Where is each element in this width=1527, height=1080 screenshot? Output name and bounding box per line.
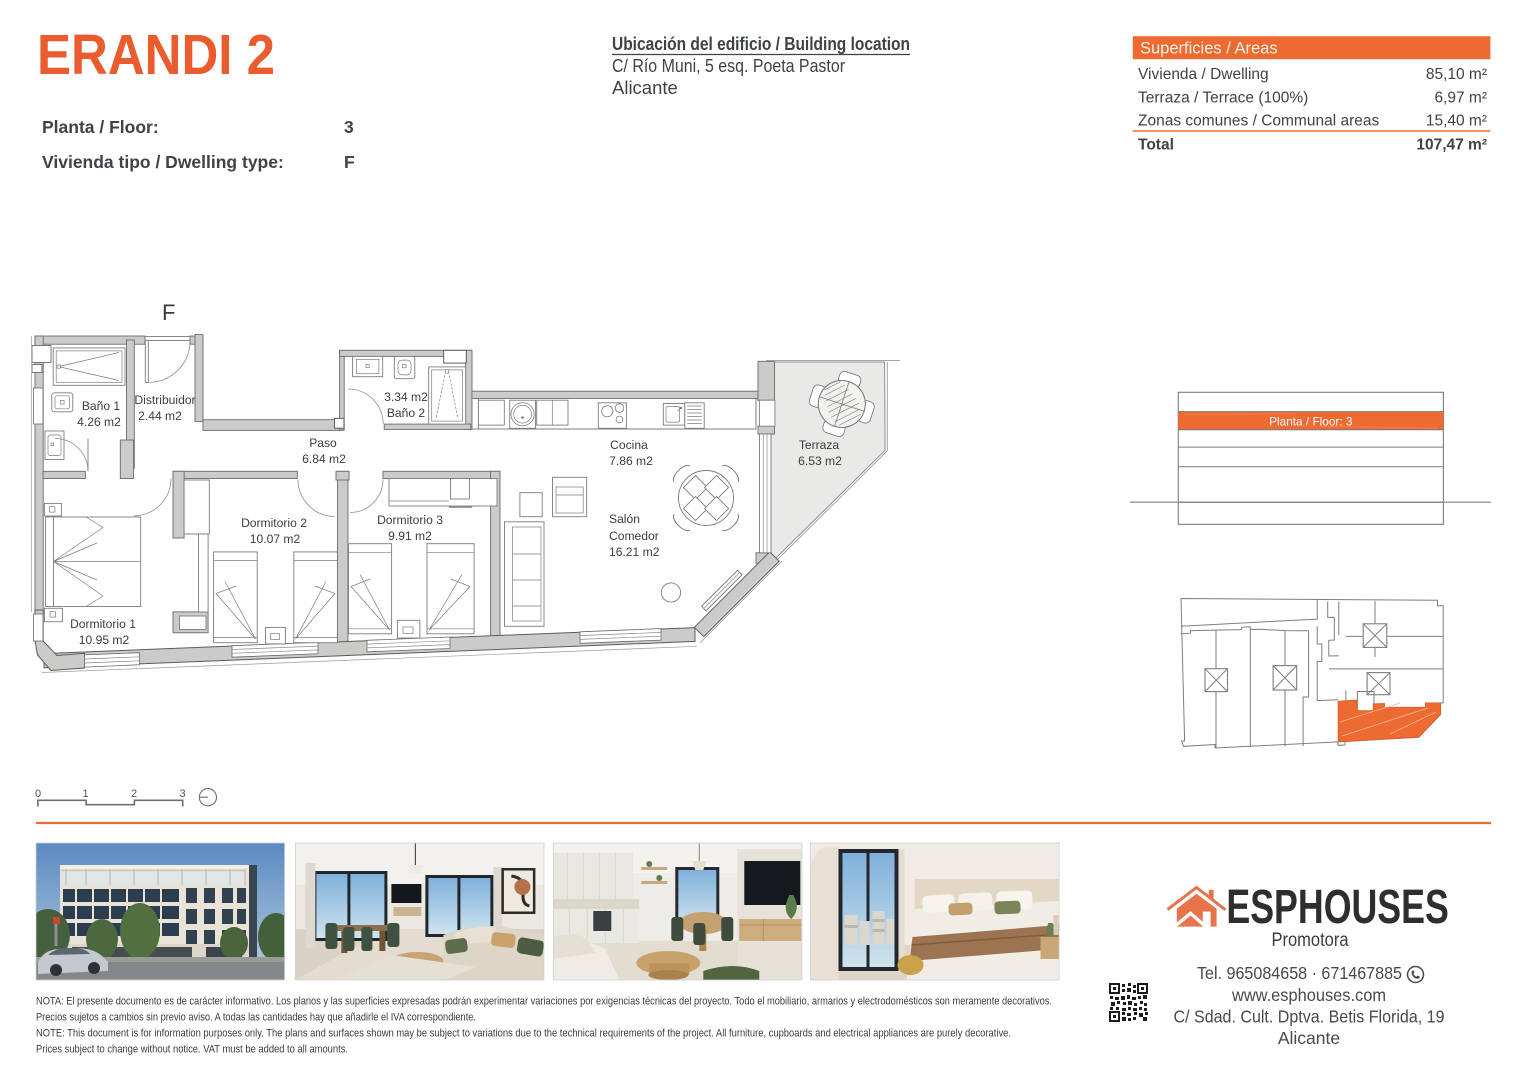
svg-text:10.95 m2: 10.95 m2 — [79, 633, 130, 647]
svg-text:107,47 m²: 107,47 m² — [1416, 137, 1487, 154]
svg-text:Distribuidor: Distribuidor — [134, 393, 195, 407]
svg-text:F: F — [344, 152, 355, 172]
svg-text:3: 3 — [344, 117, 354, 137]
svg-text:Prices subject to change witho: Prices subject to change without notice.… — [36, 1044, 348, 1056]
svg-text:Vivienda tipo / Dwelling type:: Vivienda tipo / Dwelling type: — [42, 152, 284, 172]
svg-text:9.91 m2: 9.91 m2 — [388, 529, 432, 543]
svg-text:Vivienda / Dwelling: Vivienda / Dwelling — [1138, 66, 1269, 83]
svg-text:NOTA: El presente documento es: NOTA: El presente documento es de caráct… — [36, 996, 1052, 1008]
svg-text:ESPHOUSES: ESPHOUSES — [1226, 880, 1448, 934]
svg-text:C/ Río Muni, 5 esq. Poeta Past: C/ Río Muni, 5 esq. Poeta Pastor — [612, 55, 845, 76]
svg-text:Dormitorio 3: Dormitorio 3 — [377, 513, 443, 527]
svg-text:Planta / Floor: 3: Planta / Floor: 3 — [1269, 414, 1353, 428]
svg-text:2.44 m2: 2.44 m2 — [138, 409, 182, 423]
svg-text:Cocina: Cocina — [610, 438, 648, 452]
svg-text:F: F — [162, 300, 175, 325]
svg-text:Tel. 965084658 · 671467885: Tel. 965084658 · 671467885 — [1197, 963, 1402, 983]
svg-text:16.21 m2: 16.21 m2 — [609, 545, 660, 559]
svg-text:6.84 m2: 6.84 m2 — [302, 452, 346, 466]
svg-text:2: 2 — [131, 788, 137, 800]
svg-text:3.34 m2: 3.34 m2 — [384, 390, 428, 404]
svg-text:Dormitorio 2: Dormitorio 2 — [241, 516, 307, 530]
svg-text:NOTE: This document is for inf: NOTE: This document is for information p… — [36, 1028, 1011, 1040]
svg-text:Alicante: Alicante — [1278, 1028, 1340, 1048]
svg-text:ERANDI 2: ERANDI 2 — [37, 23, 275, 87]
svg-text:www.esphouses.com: www.esphouses.com — [1231, 985, 1386, 1005]
svg-text:1: 1 — [83, 788, 89, 800]
svg-text:7.86 m2: 7.86 m2 — [609, 454, 653, 468]
svg-text:Planta / Floor:: Planta / Floor: — [42, 117, 159, 137]
svg-text:Salón: Salón — [609, 512, 640, 526]
svg-text:15,40 m²: 15,40 m² — [1426, 113, 1487, 130]
svg-text:4.26 m2: 4.26 m2 — [77, 415, 121, 429]
svg-text:Alicante: Alicante — [612, 77, 678, 98]
svg-text:6.53 m2: 6.53 m2 — [798, 454, 842, 468]
svg-text:Zonas comunes / Communal areas: Zonas comunes / Communal areas — [1138, 113, 1379, 130]
svg-text:85,10 m²: 85,10 m² — [1426, 66, 1487, 83]
svg-text:Superficies / Areas: Superficies / Areas — [1140, 40, 1278, 58]
svg-text:Terraza / Terrace (100%): Terraza / Terrace (100%) — [1138, 90, 1308, 107]
svg-text:3: 3 — [180, 788, 186, 800]
svg-text:Dormitorio 1: Dormitorio 1 — [70, 617, 136, 631]
svg-text:Terraza: Terraza — [799, 438, 840, 452]
svg-text:10.07 m2: 10.07 m2 — [250, 532, 301, 546]
svg-text:Comedor: Comedor — [609, 529, 659, 543]
svg-text:0: 0 — [35, 788, 41, 800]
svg-text:Baño 1: Baño 1 — [82, 399, 121, 413]
svg-text:Paso: Paso — [309, 436, 337, 450]
svg-text:C/ Sdad. Cult. Dptva. Betis Fl: C/ Sdad. Cult. Dptva. Betis Florida, 19 — [1174, 1007, 1445, 1027]
svg-text:Ubicación del edificio / Build: Ubicación del edificio / Building locati… — [612, 33, 910, 54]
svg-text:Baño 2: Baño 2 — [387, 406, 426, 420]
svg-text:Total: Total — [1138, 137, 1174, 154]
svg-text:Promotora: Promotora — [1272, 930, 1349, 951]
svg-text:Precios sujetos a cambios sin: Precios sujetos a cambios sin previo avi… — [36, 1012, 476, 1024]
svg-text:6,97 m²: 6,97 m² — [1434, 90, 1487, 107]
